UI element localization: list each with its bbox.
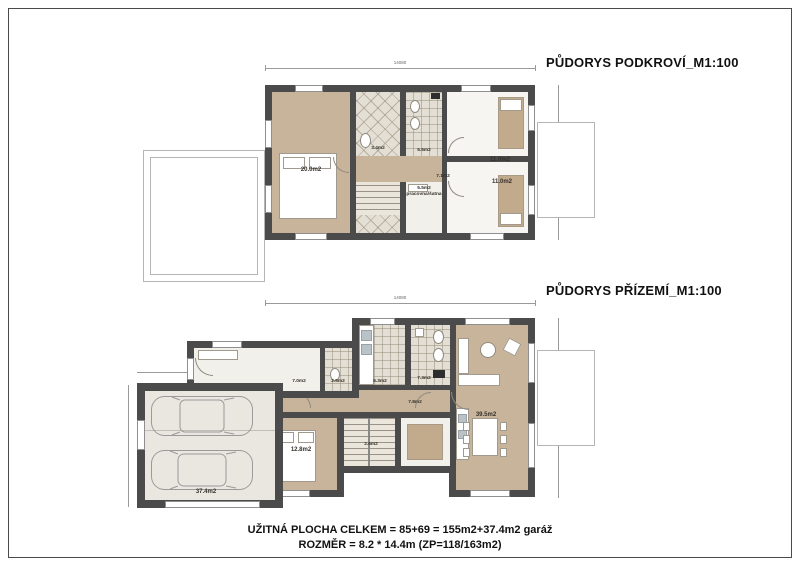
room-label-kitchen: 6.3m2 — [373, 379, 387, 384]
room-label-garage: 37.4m2 — [196, 489, 216, 495]
toilet — [433, 330, 444, 344]
sofa — [458, 374, 500, 386]
attic-title: PŮDORYS PODKROVÍ_M1:100 — [546, 55, 739, 70]
window — [528, 105, 535, 131]
round-table — [480, 342, 496, 358]
chair — [463, 435, 470, 444]
ground-dim-tick — [535, 300, 536, 306]
window — [528, 343, 535, 383]
room-label-bath-small: 3.4m2 — [371, 146, 385, 151]
car-top-view — [150, 395, 254, 437]
chair — [500, 422, 507, 431]
room-label-bedroom: 20.0m2 — [301, 167, 321, 173]
pillow — [500, 99, 522, 111]
attic-dim-tick — [535, 65, 536, 71]
window — [370, 318, 395, 325]
garage-dim-left-line — [128, 385, 129, 507]
chair — [500, 448, 507, 457]
room-label-entry: 7.0m2 — [292, 379, 306, 384]
window — [465, 318, 510, 325]
entry-door — [187, 358, 194, 380]
footer-line1: UŽITNÁ PLOCHA CELKEM = 85+69 = 155m2+37.… — [0, 524, 800, 536]
appliance — [361, 344, 372, 355]
garage-roof-outline-inner — [150, 157, 258, 275]
sofa — [458, 338, 469, 374]
attic-terrace-outline — [537, 122, 595, 218]
chair — [463, 422, 470, 431]
sink — [410, 117, 420, 130]
room-label-study-area: 5.5m2 — [417, 186, 431, 191]
chair — [500, 435, 507, 444]
attic-dim-top-label: 14080 — [394, 61, 407, 66]
room-label-hall: 7.1m2 — [436, 174, 450, 179]
ground-title: PŮDORYS PŘÍZEMÍ_M1:100 — [546, 283, 722, 298]
rug — [407, 424, 443, 460]
window — [461, 85, 491, 92]
attic-hall-floor — [356, 156, 447, 182]
room-label-br: 11.0m2 — [492, 179, 512, 185]
ground-dim-tick — [265, 300, 266, 306]
dining-table — [472, 418, 498, 456]
drawing-sheet: PŮDORYS PODKROVÍ_M1:100 PŮDORYS PŘÍZEMÍ_… — [0, 0, 800, 566]
attic-dim-top-line — [265, 68, 535, 69]
toilet — [360, 133, 371, 148]
garage-door — [165, 501, 260, 508]
room-label-bath: 7.3m2 — [417, 376, 431, 381]
exterior-notch — [265, 318, 352, 341]
ground-terrace-outline — [537, 350, 595, 446]
window — [212, 341, 242, 348]
room-label-study-name: pracovna/šatna — [406, 192, 441, 197]
ground-dim-top-line — [265, 303, 535, 304]
ground-dim-top-label: 14080 — [394, 296, 407, 301]
window — [280, 490, 310, 497]
room-label-stairs: 2.6m2 — [364, 442, 378, 447]
room-label-bath: 5.5m2 — [417, 148, 431, 153]
attic-dim-tick — [265, 65, 266, 71]
pillow — [298, 432, 314, 443]
window — [528, 185, 535, 215]
fixture — [431, 93, 440, 99]
sink — [415, 328, 424, 337]
window — [528, 423, 535, 468]
exterior-notch — [344, 473, 449, 497]
ground-wall — [337, 418, 344, 497]
pillow — [500, 213, 522, 225]
window — [265, 120, 272, 148]
car-top-view — [150, 449, 254, 491]
room-label-living: 39.5m2 — [476, 412, 496, 418]
toilet — [410, 100, 420, 113]
footer-line2: ROZMĚR = 8.2 * 14.4m (ZP=118/163m2) — [0, 539, 800, 551]
window — [470, 233, 504, 240]
room-label-tr: 11.0m2 — [490, 157, 510, 163]
window — [137, 420, 145, 450]
window — [295, 233, 327, 240]
room-label-bedroom: 12.8m2 — [291, 447, 311, 453]
appliance — [361, 330, 372, 341]
room-label-hall: 7.8m2 — [408, 400, 422, 405]
stairs-void — [356, 215, 400, 233]
window — [295, 85, 323, 92]
bidet — [433, 348, 444, 362]
window — [265, 185, 272, 213]
chair — [463, 448, 470, 457]
window — [470, 490, 510, 497]
boiler — [433, 370, 445, 378]
room-label-wc: 2.5m2 — [331, 379, 345, 384]
